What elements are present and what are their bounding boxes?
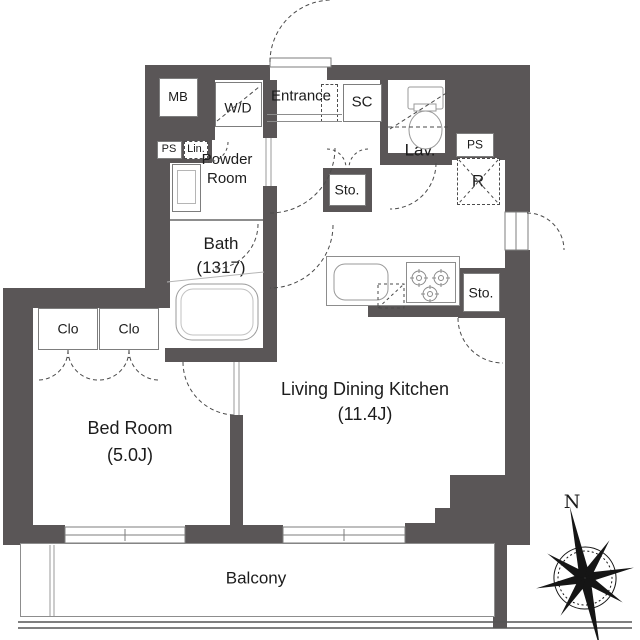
room-label-closet-right: Clo: [118, 320, 139, 338]
room-label-powder-room: Powder Room: [202, 150, 253, 188]
entrance-step-line-1: [267, 114, 342, 115]
wall-bath-bottom: [165, 348, 277, 362]
floor-plan: MB W/D Entrance SC Lav. PS R PS Lin. Pow…: [0, 0, 640, 640]
ldk-window: [283, 527, 405, 543]
room-label-pipe-space-left: PS: [162, 143, 177, 157]
lavatory-door-arc: [390, 163, 436, 209]
ground-line: [18, 622, 632, 628]
bathtub-icon: [167, 272, 264, 340]
wall-balcony-pillar: [493, 545, 507, 628]
entrance-step-line-2: [267, 121, 342, 122]
north-label: N: [564, 491, 581, 515]
room-label-ldk: Living Dining Kitchen (11.4J): [281, 377, 449, 427]
room-label-washer-dryer: W/D: [224, 99, 251, 117]
room-label-storage-kitchen: Sto.: [469, 284, 494, 302]
stove-box: [406, 262, 456, 303]
bath-door-sill: [170, 219, 263, 221]
room-label-balcony: Balcony: [226, 567, 286, 588]
wall-bottom-left: [33, 525, 65, 545]
wall-hall-powder-b: [263, 186, 277, 222]
room-label-entrance: Entrance: [271, 88, 331, 107]
powder-door-leaf: [266, 138, 271, 186]
vanity-basin: [177, 170, 196, 204]
room-label-storage-hall: Sto.: [335, 181, 360, 199]
room-label-lavatory: Lav.: [405, 139, 436, 160]
wall-bottom-mid: [185, 525, 283, 545]
storage-kitchen-door-arc: [458, 318, 503, 363]
room-label-bedroom: Bed Room (5.0J): [87, 415, 172, 469]
bedroom-door: [183, 362, 239, 415]
wall-step-3: [405, 523, 530, 545]
room-label-closet-left: Clo: [57, 320, 78, 338]
room-label-bath: Bath (1317): [196, 232, 245, 280]
wall-bath-right: [263, 222, 277, 362]
wall-right-upper: [505, 80, 530, 212]
room-label-refrigerator: R: [472, 170, 484, 191]
compass-rose: [521, 496, 640, 640]
bedroom-window: [65, 527, 185, 543]
wall-bedroom-partition: [230, 415, 243, 525]
side-window: [505, 212, 564, 250]
room-label-shoe-closet: SC: [352, 94, 373, 113]
hall-ldk-door-arc: [270, 225, 333, 288]
wall-left-lower: [3, 288, 33, 545]
room-label-mb: MB: [168, 89, 188, 105]
storage-hall-door-arcs: [327, 149, 368, 168]
closet-door-arcs: [38, 350, 159, 380]
room-label-pipe-space-right: PS: [467, 138, 483, 153]
entrance-door: [270, 0, 332, 67]
